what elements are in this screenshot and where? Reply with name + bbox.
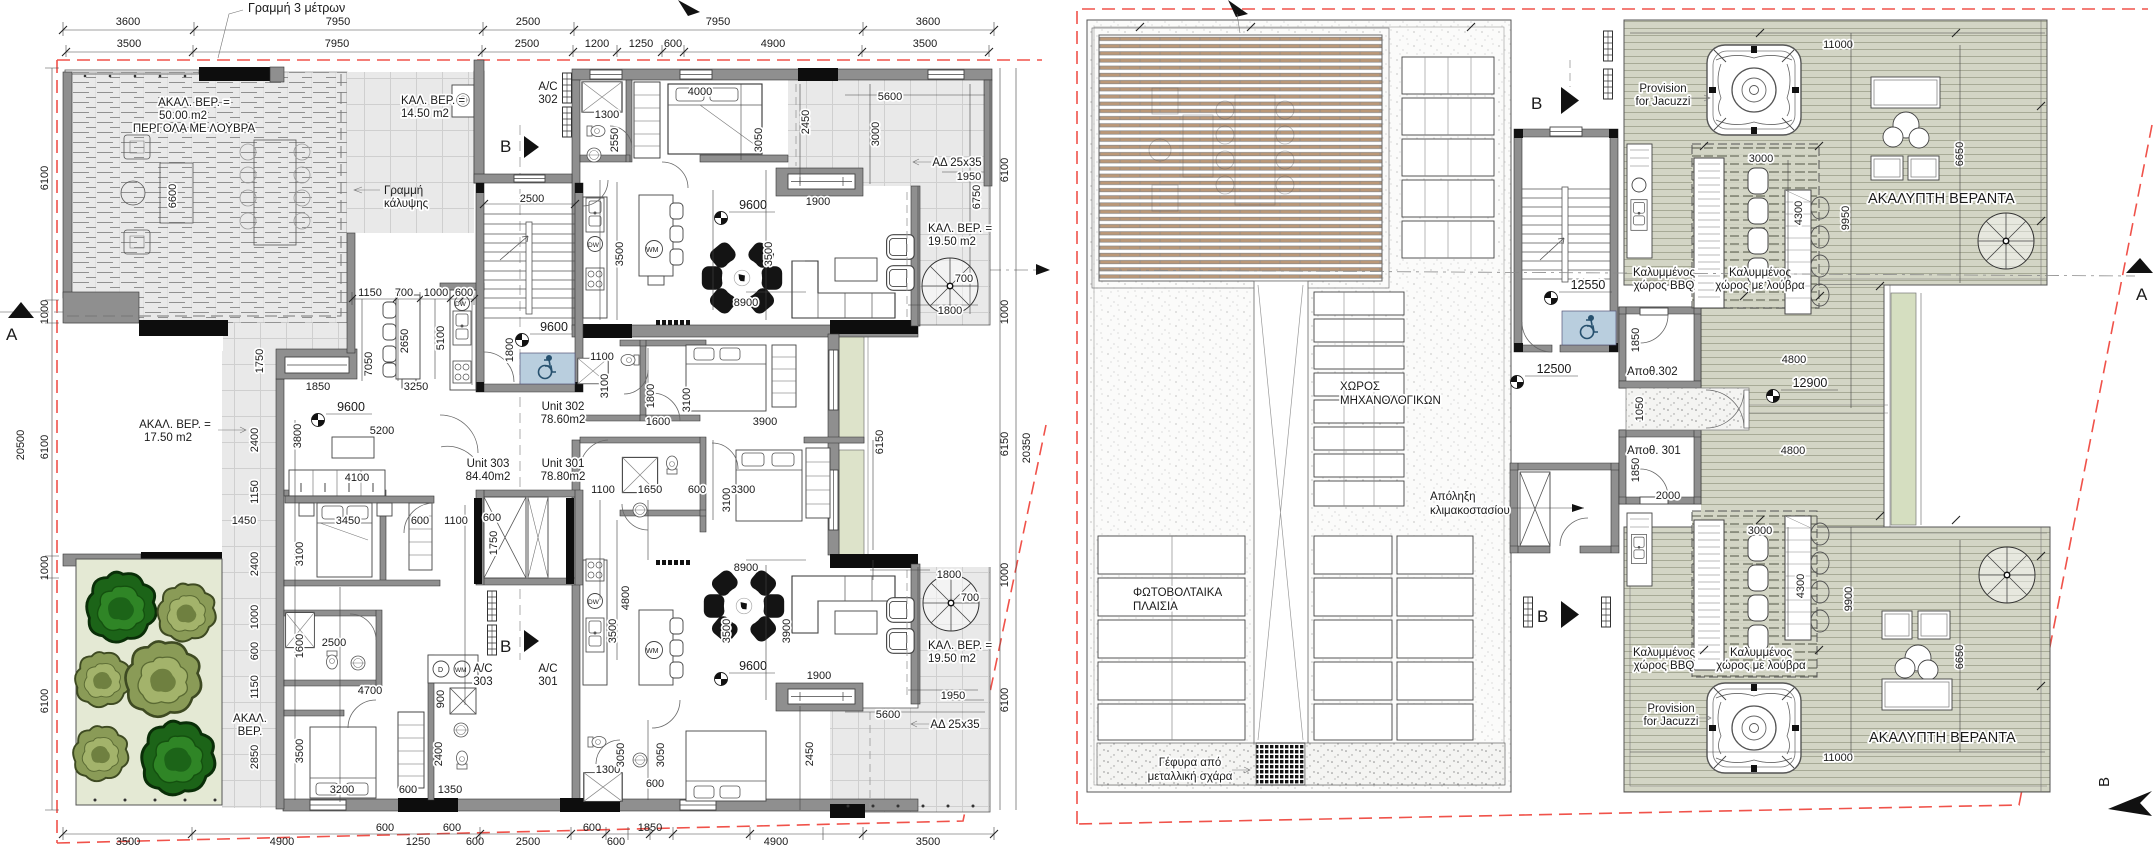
svg-text:μεταλλική σχάρα: μεταλλική σχάρα [1148,771,1233,783]
svg-text:9900: 9900 [1843,587,1855,611]
svg-text:3250: 3250 [404,381,428,393]
svg-text:3000: 3000 [1748,525,1772,537]
svg-text:12500: 12500 [1537,362,1572,376]
svg-text:3300: 3300 [731,484,755,496]
svg-text:4000: 4000 [688,86,712,98]
svg-text:ΜΗΧΑΝΟΛΟΓΙΚΩΝ: ΜΗΧΑΝΟΛΟΓΙΚΩΝ [1340,395,1441,407]
svg-text:6100: 6100 [999,158,1011,182]
svg-text:ΑΔ 25x35: ΑΔ 25x35 [930,719,979,731]
svg-text:600: 600 [455,287,473,299]
svg-text:1850: 1850 [1630,328,1642,352]
svg-text:2400: 2400 [249,552,261,576]
svg-text:DW: DW [588,242,600,249]
svg-text:1250: 1250 [406,836,430,846]
svg-text:Καλυμμένος: Καλυμμένος [1730,647,1792,659]
svg-text:2450: 2450 [804,742,816,766]
svg-text:1850: 1850 [306,381,330,393]
svg-text:1850: 1850 [638,822,662,834]
svg-text:19.50 m2: 19.50 m2 [928,653,976,665]
svg-text:2400: 2400 [433,742,445,766]
svg-text:1000: 1000 [249,605,261,629]
svg-text:50.00 m2: 50.00 m2 [159,110,207,122]
svg-text:78.60m2: 78.60m2 [541,414,586,426]
svg-text:χώρος με λούβρα: χώρος με λούβρα [1716,660,1806,672]
svg-text:3900: 3900 [753,416,777,428]
svg-text:DW: DW [455,301,467,308]
svg-text:WM: WM [646,648,659,655]
svg-text:Provision: Provision [1639,83,1686,95]
svg-text:3100: 3100 [599,374,611,398]
svg-text:600: 600 [607,836,625,846]
svg-text:6600: 6600 [167,184,179,208]
svg-text:3200: 3200 [330,784,354,796]
svg-text:9600: 9600 [540,320,568,334]
svg-text:B: B [1537,607,1548,626]
svg-text:1950: 1950 [957,171,981,183]
svg-text:ΠΕΡΓΟΛΑ ΜΕ ΛΟΥΒΡΑ: ΠΕΡΓΟΛΑ ΜΕ ΛΟΥΒΡΑ [133,123,256,135]
svg-text:ΠΛΑΙΣΙΑ: ΠΛΑΙΣΙΑ [1133,601,1178,613]
svg-text:1000: 1000 [39,556,51,580]
svg-text:Αποθ. 301: Αποθ. 301 [1627,445,1681,457]
svg-text:κλιμακοστασίου: κλιμακοστασίου [1430,505,1510,517]
svg-text:Απόληξη: Απόληξη [1430,491,1475,503]
svg-text:600: 600 [399,784,417,796]
svg-text:2400: 2400 [249,428,261,452]
svg-text:1150: 1150 [249,675,261,699]
svg-text:2500: 2500 [520,193,544,205]
svg-text:B: B [500,137,511,156]
svg-text:7950: 7950 [325,38,349,50]
svg-text:1900: 1900 [806,196,830,208]
svg-text:ΚΑΛ. ΒΕΡ. =: ΚΑΛ. ΒΕΡ. = [401,95,465,107]
svg-text:700: 700 [961,592,979,604]
svg-text:3050: 3050 [753,128,765,152]
svg-text:600: 600 [688,484,706,496]
svg-text:14.50 m2: 14.50 m2 [401,108,449,120]
svg-text:κάλυψης: κάλυψης [384,198,429,210]
svg-text:ΑΚΑΛ.: ΑΚΑΛ. [233,713,267,725]
svg-text:3500: 3500 [916,836,940,846]
svg-text:ΑΚΑΛ. ΒΕΡ. =: ΑΚΑΛ. ΒΕΡ. = [139,419,211,431]
svg-text:9600: 9600 [337,400,365,414]
svg-text:Καλυμμένος: Καλυμμένος [1633,267,1695,279]
svg-text:9950: 9950 [1840,206,1852,230]
svg-text:χώρος BBQ: χώρος BBQ [1634,280,1695,292]
svg-text:A/C: A/C [473,663,492,675]
svg-text:7950: 7950 [706,16,730,28]
svg-text:3600: 3600 [916,16,940,28]
svg-text:4800: 4800 [1782,354,1806,366]
svg-text:5200: 5200 [370,425,394,437]
svg-text:ΚΑΛ. ΒΕΡ. =: ΚΑΛ. ΒΕΡ. = [928,223,992,235]
svg-text:1950: 1950 [941,690,965,702]
svg-text:9600: 9600 [739,198,767,212]
svg-text:WM: WM [646,247,659,254]
svg-text:5600: 5600 [876,709,900,721]
svg-text:1750: 1750 [254,349,266,373]
svg-text:1100: 1100 [591,484,615,496]
svg-text:DW: DW [588,599,600,606]
svg-text:3500: 3500 [117,38,141,50]
svg-text:600: 600 [411,515,429,527]
svg-text:1000: 1000 [424,287,448,299]
svg-text:4900: 4900 [764,836,788,846]
svg-text:4800: 4800 [620,586,632,610]
svg-text:2000: 2000 [1656,490,1680,502]
svg-text:84.40m2: 84.40m2 [466,471,511,483]
svg-text:3500: 3500 [721,619,733,643]
svg-text:4100: 4100 [345,472,369,484]
svg-text:1200: 1200 [585,38,609,50]
svg-text:for Jacuzzi: for Jacuzzi [1636,96,1691,108]
svg-text:ΚΑΛ. ΒΕΡ. =: ΚΑΛ. ΒΕΡ. = [928,640,992,652]
svg-text:4900: 4900 [270,836,294,846]
svg-text:1750: 1750 [488,531,500,555]
svg-text:600: 600 [466,836,484,846]
svg-text:ΦΩΤΟΒΟΛΤΑΙΚΑ: ΦΩΤΟΒΟΛΤΑΙΚΑ [1133,587,1222,599]
svg-text:3050: 3050 [615,743,627,767]
svg-text:303: 303 [473,676,492,688]
svg-text:Αποθ.302: Αποθ.302 [1627,366,1678,378]
svg-text:9600: 9600 [739,659,767,673]
svg-text:6100: 6100 [39,689,51,713]
svg-text:5100: 5100 [435,326,447,350]
svg-text:ΧΩΡΟΣ: ΧΩΡΟΣ [1340,381,1380,393]
svg-text:11000: 11000 [1823,39,1853,51]
svg-text:B: B [2096,777,2113,787]
svg-text:700: 700 [395,287,413,299]
svg-text:1150: 1150 [249,480,261,504]
svg-text:2500: 2500 [516,836,540,846]
svg-text:4300: 4300 [1795,574,1807,598]
svg-text:1450: 1450 [232,515,256,527]
svg-text:1350: 1350 [438,784,462,796]
svg-text:ΑΚΑΛ. ΒΕΡ. =: ΑΚΑΛ. ΒΕΡ. = [158,97,230,109]
svg-text:6150: 6150 [874,430,886,454]
svg-text:D: D [438,667,443,674]
svg-text:3500: 3500 [607,619,619,643]
svg-text:3100: 3100 [294,542,306,566]
svg-text:Unit 301: Unit 301 [542,458,585,470]
svg-text:3000: 3000 [1749,153,1773,165]
svg-text:2500: 2500 [515,38,539,50]
svg-text:ΑΔ 25x35: ΑΔ 25x35 [932,157,981,169]
svg-text:4300: 4300 [1793,201,1805,225]
svg-text:600: 600 [249,642,261,660]
svg-text:2650: 2650 [399,329,411,353]
svg-text:1600: 1600 [646,416,670,428]
svg-text:6100: 6100 [39,435,51,459]
svg-text:12900: 12900 [1793,376,1828,390]
svg-text:600: 600 [376,822,394,834]
svg-text:χώρος BBQ: χώρος BBQ [1634,660,1695,672]
svg-text:20350: 20350 [1021,433,1033,464]
svg-text:600: 600 [583,822,601,834]
svg-text:Γραμμή 3 μέτρων: Γραμμή 3 μέτρων [248,1,345,15]
svg-text:3050: 3050 [655,743,667,767]
svg-text:19.50 m2: 19.50 m2 [928,236,976,248]
svg-text:2550: 2550 [609,128,621,152]
svg-text:Καλυμμένος: Καλυμμένος [1729,267,1791,279]
svg-text:B: B [500,637,511,656]
svg-text:8900: 8900 [734,297,758,309]
svg-text:1000: 1000 [999,300,1011,324]
svg-text:6750: 6750 [971,185,983,209]
svg-text:1100: 1100 [590,351,614,363]
svg-text:χώρος με λούβρα: χώρος με λούβρα [1715,280,1805,292]
svg-text:2500: 2500 [322,637,346,649]
svg-text:1800: 1800 [938,305,962,317]
svg-text:4800: 4800 [1781,445,1805,457]
svg-text:3000: 3000 [870,122,882,146]
svg-text:Καλυμμένος: Καλυμμένος [1633,647,1695,659]
svg-text:600: 600 [646,778,664,790]
svg-text:20500: 20500 [15,430,27,461]
svg-text:1000: 1000 [999,563,1011,587]
svg-text:12550: 12550 [1571,278,1606,292]
svg-text:1850: 1850 [1630,458,1642,482]
svg-text:600: 600 [443,822,461,834]
svg-text:1000: 1000 [39,300,51,324]
svg-text:2450: 2450 [800,110,812,134]
svg-text:3800: 3800 [292,424,304,448]
svg-text:3900: 3900 [781,619,793,643]
svg-text:1650: 1650 [638,484,662,496]
svg-text:11000: 11000 [1823,752,1853,764]
svg-text:1800: 1800 [937,569,961,581]
svg-text:A: A [6,325,18,344]
svg-text:6100: 6100 [39,166,51,190]
svg-text:6100: 6100 [999,688,1011,712]
svg-text:17.50 m2: 17.50 m2 [144,432,192,444]
svg-text:301: 301 [538,676,557,688]
svg-text:3500: 3500 [294,739,306,763]
svg-text:Γέφυρα από: Γέφυρα από [1159,757,1222,769]
svg-text:1900: 1900 [807,670,831,682]
svg-text:Γραμμή: Γραμμή [384,185,423,197]
svg-text:302: 302 [538,94,557,106]
svg-text:ΒΕΡ.: ΒΕΡ. [238,726,263,738]
svg-text:4900: 4900 [761,38,785,50]
svg-text:7950: 7950 [326,16,350,28]
svg-text:7050: 7050 [363,352,375,376]
svg-text:Unit 302: Unit 302 [542,401,585,413]
svg-text:3100: 3100 [681,388,693,412]
svg-text:3500: 3500 [116,836,140,846]
svg-text:700: 700 [955,273,973,285]
svg-text:1800: 1800 [645,384,657,408]
svg-text:6150: 6150 [999,432,1011,456]
svg-text:A/C: A/C [538,663,557,675]
svg-text:3450: 3450 [336,515,360,527]
svg-text:Provision: Provision [1647,703,1694,715]
svg-text:Unit 303: Unit 303 [467,458,510,470]
svg-text:1600: 1600 [294,634,306,658]
svg-text:B: B [1531,94,1542,113]
svg-text:for Jacuzzi: for Jacuzzi [1644,716,1699,728]
svg-text:600: 600 [664,38,682,50]
svg-text:1100: 1100 [444,515,468,527]
svg-text:3500: 3500 [763,242,775,266]
svg-text:1250: 1250 [629,38,653,50]
svg-text:1150: 1150 [358,287,382,299]
svg-text:ΑΚΑΛΥΠΤΗ ΒΕΡΑΝΤΑ: ΑΚΑΛΥΠΤΗ ΒΕΡΑΝΤΑ [1868,191,2015,207]
svg-text:4700: 4700 [358,685,382,697]
svg-text:3500: 3500 [913,38,937,50]
svg-text:ΑΚΑΛΥΠΤΗ ΒΕΡΑΝΤΑ: ΑΚΑΛΥΠΤΗ ΒΕΡΑΝΤΑ [1869,730,2016,746]
svg-text:2500: 2500 [516,16,540,28]
svg-text:1800: 1800 [504,338,516,362]
svg-text:5600: 5600 [878,91,902,103]
svg-text:3500: 3500 [614,242,626,266]
svg-text:3600: 3600 [116,16,140,28]
svg-text:A/C: A/C [538,81,557,93]
svg-text:900: 900 [435,690,447,708]
svg-text:78.80m2: 78.80m2 [541,471,586,483]
svg-text:A: A [2136,285,2148,304]
svg-text:2850: 2850 [249,745,261,769]
svg-text:3100: 3100 [721,488,733,512]
svg-text:8900: 8900 [734,562,758,574]
svg-text:600: 600 [483,512,501,524]
svg-text:1050: 1050 [1634,397,1646,421]
svg-text:1300: 1300 [595,109,619,121]
